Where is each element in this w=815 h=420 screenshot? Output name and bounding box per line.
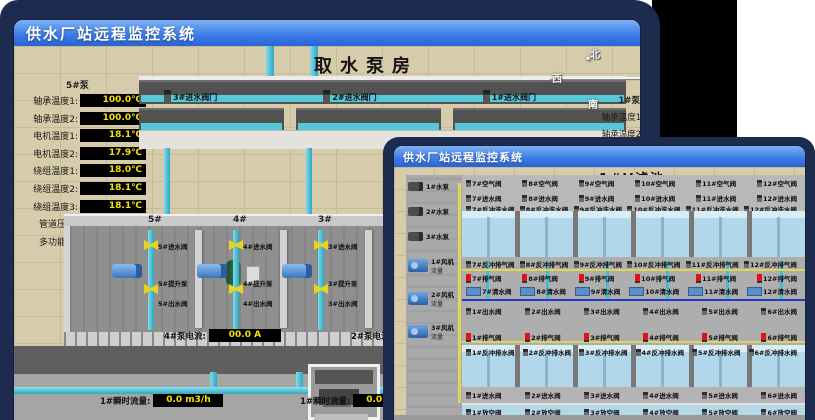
reading-value: 18.1℃: [80, 129, 146, 142]
vent-valve-label: 9#排气阀: [585, 273, 614, 283]
reading-row: 绕组温度3: 18.1℃: [18, 200, 148, 213]
outlet-valve-label: 1#出水阀: [472, 306, 501, 316]
air-valve[interactable]: 7#空气阀: [466, 178, 501, 188]
valve-icon: [483, 90, 490, 103]
clean-water-icon: [575, 287, 590, 296]
outlet-valve[interactable]: 1#出水阀: [466, 306, 501, 316]
pump-bay: 3# 3#进水阀 3#提升泵 3#出水阀: [282, 226, 367, 332]
outlet-valve[interactable]: 4#出水阀: [643, 306, 678, 316]
clean-water-label: 12#清水阀: [763, 286, 797, 296]
current-reading: 4#泵电流: 00.0 A: [164, 329, 281, 342]
blower-icon: [408, 292, 428, 305]
backwash-vent-valve[interactable]: 9#反冲排气阀: [574, 259, 622, 269]
clean-water-label: 11#清水阀: [704, 286, 738, 296]
backwash-drain-label: 2#反冲排水阀: [529, 347, 571, 357]
pump1-header: 1#泵: [554, 94, 640, 106]
outlet-valve[interactable]: 2#出水阀: [525, 306, 560, 316]
flow-value: 0.0 m3/h: [153, 394, 223, 407]
inlet-valve[interactable]: 10#进水阀: [635, 193, 675, 203]
outlet-valve-label: 2#出水阀: [531, 306, 560, 316]
reading-value: 18.0℃: [80, 164, 146, 177]
vent-valve[interactable]: 6#排气阀: [761, 332, 796, 342]
vent-valve[interactable]: 11#排气阀: [696, 273, 736, 283]
filter-cell[interactable]: [694, 211, 747, 257]
clean-water-icon: [520, 287, 535, 296]
inlet-valve-row: 7#进水阀8#进水阀9#进水阀10#进水阀11#进水阀12#进水阀: [466, 193, 797, 203]
vent-valve-label: 5#排气阀: [708, 332, 737, 342]
air-valve-label: 11#空气阀: [702, 178, 736, 188]
filter-pool-scene: 1#V滤池 1#水泵 2#水泵 3#水泵: [394, 167, 805, 420]
filter-cell[interactable]: [578, 211, 631, 257]
scene-title: 取水泵房: [314, 52, 418, 78]
pump-label: 3#提升泵: [328, 278, 357, 288]
lift-pump[interactable]: [112, 264, 142, 278]
filter-cell[interactable]: [636, 211, 689, 257]
vent-valve[interactable]: 1#排气阀: [466, 332, 501, 342]
clean-water-icon: [466, 287, 481, 296]
backwash-vent-label: 9#反冲排气阀: [580, 259, 622, 269]
reading-label: 绕组温度3:: [18, 200, 78, 213]
valve-icon: [525, 308, 530, 315]
background-black-region: [652, 0, 737, 139]
bay-number: 3#: [318, 215, 332, 225]
down-pipe: [164, 148, 170, 214]
inlet-valve-row-lower: 1#进水阀2#进水阀3#进水阀4#进水阀5#进水阀6#进水阀: [466, 390, 797, 400]
reading-row: 绕组温度1: 18.0℃: [18, 164, 148, 177]
air-valve-label: 9#空气阀: [585, 178, 614, 188]
valve-icon: [692, 349, 697, 356]
flow-label: 1#瞬时流量:: [300, 395, 350, 407]
pump-bay: 4# 4#进水阀 4#提升泵 4#出水阀: [197, 226, 282, 332]
intake-valve-label: 3#进水阀门: [173, 92, 217, 103]
inlet-valve-label: 9#进水阀: [585, 193, 614, 203]
clean-water-label: 10#清水阀: [645, 286, 679, 296]
valve-icon: [749, 349, 754, 356]
outlet-valve[interactable]: 5#出水阀: [702, 306, 737, 316]
valve-icon: [643, 308, 648, 315]
pump-label: 1#水泵: [426, 181, 449, 191]
pump-label: 4#提升泵: [243, 278, 272, 288]
valve-icon: [627, 261, 632, 268]
valve-icon: [643, 392, 648, 399]
blower-label: 1#风机: [431, 256, 454, 266]
valve-icon: [164, 90, 171, 103]
lift-pump[interactable]: [197, 264, 227, 278]
channel-water: [141, 123, 282, 130]
blower-label: 3#风机: [431, 322, 454, 332]
valve-icon: [525, 392, 530, 399]
clean-water-valve[interactable]: 11#清水阀: [688, 286, 738, 296]
valve-icon: [761, 308, 766, 315]
scene-bottom-edge: [394, 415, 805, 420]
vent-valve[interactable]: 9#排气阀: [579, 273, 614, 283]
inlet-valve-label: 5#进水阀: [158, 241, 187, 251]
clean-water-pipe: [462, 299, 805, 301]
valve-icon: [761, 392, 766, 399]
vent-valve-label: 1#排气阀: [472, 332, 501, 342]
backwash-drain-valve[interactable]: 5#反冲排水阀: [692, 347, 740, 357]
vent-valve-label: 8#排气阀: [528, 273, 557, 283]
vent-valve[interactable]: 8#排气阀: [522, 273, 557, 283]
pipe-stub: [210, 372, 217, 388]
backwash-drain-valve[interactable]: 6#反冲排水阀: [749, 347, 797, 357]
outlet-valve[interactable]: 3#出水阀: [584, 306, 619, 316]
valve-icon: [635, 195, 640, 202]
reading-value: 100.0℃: [80, 112, 146, 125]
pump-label: 5#提升泵: [158, 278, 187, 288]
reading-label: 绕组温度1:: [18, 164, 78, 177]
upper-filter-cells: [462, 211, 805, 257]
inlet-valve[interactable]: 12#进水阀: [757, 193, 797, 203]
vent-valve-label: 7#排气阀: [472, 273, 501, 283]
backwash-vent-valve[interactable]: 8#反冲排气阀: [520, 259, 568, 269]
desktop: 供水厂站远程监控系统 取水泵房 5#泵 轴承温度1: 100.0℃ 轴承温度2:…: [0, 0, 815, 420]
vent-valve-icon: [757, 274, 762, 283]
down-pipe: [306, 148, 312, 214]
pump5-header: 5#泵: [66, 78, 148, 91]
valve-icon: [686, 261, 691, 268]
outlet-valve-row: 1#出水阀2#出水阀3#出水阀4#出水阀5#出水阀6#出水阀: [466, 306, 797, 316]
air-valve[interactable]: 12#空气阀: [757, 178, 797, 188]
intake-channel: [139, 108, 284, 132]
valve-icon: [466, 195, 471, 202]
valve-icon: [702, 392, 707, 399]
valve-icon: [466, 261, 471, 268]
window-filter-pool[interactable]: 供水厂站远程监控系统 1#V滤池 1#水泵 2#水泵 3#: [394, 146, 805, 420]
vent-valve-row-lower: 1#排气阀2#排气阀3#排气阀4#排气阀5#排气阀6#排气阀: [466, 332, 797, 342]
blower-icon: [408, 325, 428, 338]
valve-icon: [584, 392, 589, 399]
valve-icon: [523, 349, 528, 356]
valve-icon: [466, 308, 471, 315]
reading-value: 17.9℃: [80, 147, 146, 160]
air-valve-label: 10#空气阀: [641, 178, 675, 188]
back-window-title: 供水厂站远程监控系统: [26, 23, 196, 44]
clean-water-label: 8#清水阀: [536, 286, 565, 296]
air-valve-row: 7#空气阀8#空气阀9#空气阀10#空气阀11#空气阀12#空气阀: [466, 178, 797, 188]
reading-row: 轴承温度1:: [554, 111, 640, 123]
inlet-valve-label: 5#进水阀: [708, 390, 737, 400]
inlet-valve-label: 3#进水阀: [590, 390, 619, 400]
cabinet-panel: [315, 370, 373, 384]
compass-west: 西: [552, 70, 562, 85]
clean-water-valve[interactable]: 12#清水阀: [747, 286, 797, 296]
reading-label: 电机温度2:: [18, 147, 78, 160]
blower-flow-label: 流量: [431, 332, 454, 341]
backwash-drain-label: 5#反冲排水阀: [698, 347, 740, 357]
valve-icon: [522, 195, 527, 202]
backwash-drain-label: 6#反冲排水阀: [755, 347, 797, 357]
air-valve-label: 7#空气阀: [472, 178, 501, 188]
valve-icon: [757, 180, 762, 187]
inlet-valve[interactable]: 8#进水阀: [522, 193, 557, 203]
backwash-vent-valve[interactable]: 11#反冲排气阀: [686, 259, 739, 269]
filter-cell[interactable]: [520, 211, 573, 257]
vent-valve[interactable]: 7#排气阀: [466, 273, 501, 283]
lift-pump[interactable]: [282, 264, 312, 278]
inlet-valve[interactable]: 5#进水阀: [702, 390, 737, 400]
valve-icon: [323, 90, 330, 103]
reading-value: 100.0℃: [80, 94, 146, 107]
vent-valve[interactable]: 5#排气阀: [702, 332, 737, 342]
air-valve-label: 8#空气阀: [528, 178, 557, 188]
vent-valve-label: 12#排气阀: [763, 273, 797, 283]
vent-valve[interactable]: 3#排气阀: [584, 332, 619, 342]
inlet-valve[interactable]: 3#进水阀: [584, 390, 619, 400]
inlet-valve[interactable]: 9#进水阀: [579, 193, 614, 203]
riser-pipe: [266, 46, 274, 78]
reading-label: 轴承温度1:: [602, 111, 640, 123]
outlet-valve-label: 4#出水阀: [649, 306, 678, 316]
inlet-valve-label: 6#进水阀: [767, 390, 796, 400]
reading-row: 轴承温度2: 100.0℃: [18, 112, 148, 125]
vent-valve-icon: [635, 274, 640, 283]
blower-text: 1#风机 流量: [431, 256, 454, 275]
clean-water-label: 7#清水阀: [482, 286, 511, 296]
inlet-valve[interactable]: 11#进水阀: [696, 193, 736, 203]
backwash-vent-valve[interactable]: 12#反冲排气阀: [744, 259, 797, 269]
intake-valve[interactable]: 3#进水阀门: [164, 90, 217, 103]
valve-icon: [466, 180, 471, 187]
valve-icon: [702, 308, 707, 315]
valve-icon: [579, 180, 584, 187]
valve-icon: [635, 180, 640, 187]
backwash-vent-label: 11#反冲排气阀: [692, 259, 739, 269]
air-valve[interactable]: 9#空气阀: [579, 178, 614, 188]
vent-valve-icon: [579, 274, 584, 283]
blower-icon: [408, 259, 428, 272]
air-valve[interactable]: 11#空气阀: [696, 178, 736, 188]
backwash-drain-valve[interactable]: 3#反冲排水阀: [579, 347, 627, 357]
clean-water-icon: [688, 287, 703, 296]
valve-icon: [574, 261, 579, 268]
vent-valve-row-upper: 7#排气阀8#排气阀9#排气阀10#排气阀11#排气阀12#排气阀: [466, 273, 797, 283]
backwash-vent-row: 7#反冲排气阀8#反冲排气阀9#反冲排气阀10#反冲排气阀11#反冲排气阀12#…: [466, 259, 797, 269]
clean-water-valve[interactable]: 10#清水阀: [629, 286, 679, 296]
backwash-vent-valve[interactable]: 7#反冲排气阀: [466, 259, 514, 269]
valve-icon: [522, 180, 527, 187]
vent-valve-icon: [522, 274, 527, 283]
pump1-readings-panel: 1#泵 轴承温度1: 轴承温度2:: [554, 94, 640, 140]
valve-icon: [744, 261, 749, 268]
pump-label: 2#水泵: [426, 206, 449, 216]
backwash-drain-valve[interactable]: 1#反冲排水阀: [466, 347, 514, 357]
inlet-valve-label: 4#进水阀: [649, 390, 678, 400]
clean-water-label: 9#清水阀: [591, 286, 620, 296]
bay-number: 4#: [233, 215, 247, 225]
valve-icon: [520, 261, 525, 268]
front-titlebar: 供水厂站远程监控系统: [394, 146, 805, 167]
flow-reading: 1#瞬时流量: 0.0 m3/h: [100, 394, 223, 407]
backwash-vent-label: 10#反冲排气阀: [633, 259, 680, 269]
air-manifold-pipe: [462, 269, 805, 271]
front-window-title: 供水厂站远程监控系统: [403, 149, 523, 165]
inlet-valve[interactable]: 6#进水阀: [761, 390, 796, 400]
pump-icon: [408, 182, 423, 191]
inlet-valve[interactable]: 2#进水阀: [525, 390, 560, 400]
valve-icon: [757, 195, 762, 202]
intake-valve-label: 2#进水阀门: [332, 92, 376, 103]
vent-valve-icon: [761, 333, 766, 342]
inlet-valve-label: 11#进水阀: [702, 193, 736, 203]
valve-icon: [579, 195, 584, 202]
vent-valve-label: 10#排气阀: [641, 273, 675, 283]
backwash-vent-valve[interactable]: 10#反冲排气阀: [627, 259, 680, 269]
inlet-valve-label: 10#进水阀: [641, 193, 675, 203]
vent-valve-icon: [702, 333, 707, 342]
blower-label: 2#风机: [431, 289, 454, 299]
outlet-valve-label: 5#出水阀: [158, 298, 187, 308]
cabinet-pedestal: [314, 414, 368, 420]
backwash-drain-row: 1#反冲排水阀2#反冲排水阀3#反冲排水阀4#反冲排水阀5#反冲排水阀6#反冲排…: [466, 347, 797, 357]
inlet-valve-label: 1#进水阀: [472, 390, 501, 400]
reading-label: 绕组温度2:: [18, 182, 78, 195]
vent-valve[interactable]: 10#排气阀: [635, 273, 675, 283]
vent-valve-label: 2#排气阀: [531, 332, 560, 342]
blower-text: 2#风机 流量: [431, 289, 454, 308]
outlet-valve-label: 4#出水阀: [243, 298, 272, 308]
reading-row: 电机温度1: 18.1℃: [18, 129, 148, 142]
air-valve[interactable]: 10#空气阀: [635, 178, 675, 188]
filter-cell[interactable]: [462, 211, 515, 257]
inlet-valve[interactable]: 7#进水阀: [466, 193, 501, 203]
reading-row: 电机温度2: 17.9℃: [18, 147, 148, 160]
vent-valve-icon: [466, 333, 471, 342]
inlet-valve-label: 12#进水阀: [763, 193, 797, 203]
inlet-valve-label: 4#进水阀: [243, 241, 272, 251]
valve-icon: [636, 349, 641, 356]
intake-valve-row: 3#进水阀门 2#进水阀门 1#进水阀门: [164, 90, 536, 103]
valve-icon: [466, 349, 471, 356]
pump-bay: 5# 5#进水阀 5#提升泵 5#出水阀: [112, 226, 197, 332]
reading-row: 轴承温度1: 100.0℃: [18, 94, 148, 107]
vent-valve-label: 6#排气阀: [767, 332, 796, 342]
intake-channel: [296, 108, 441, 132]
backwash-drain-valve[interactable]: 4#反冲排水阀: [636, 347, 684, 357]
vent-valve-icon: [696, 274, 701, 283]
current-label: 4#泵电流:: [164, 330, 206, 342]
current-value: 00.0 A: [209, 329, 281, 342]
pump-icon: [408, 232, 423, 241]
inlet-valve-label: 7#进水阀: [472, 193, 501, 203]
inlet-valve[interactable]: 1#进水阀: [466, 390, 501, 400]
inlet-valve-label: 2#进水阀: [531, 390, 560, 400]
pump-label: 3#水泵: [426, 231, 449, 241]
backwash-drain-valve[interactable]: 2#反冲排水阀: [523, 347, 571, 357]
inlet-valve[interactable]: 4#进水阀: [643, 390, 678, 400]
vent-valve-icon: [525, 333, 530, 342]
backwash-vent-label: 8#反冲排气阀: [526, 259, 568, 269]
reading-row: 绕组温度2: 18.1℃: [18, 182, 148, 195]
vent-valve-label: 3#排气阀: [590, 332, 619, 342]
valve-icon: [696, 195, 701, 202]
channel-water: [298, 123, 439, 130]
vent-valve-label: 11#排气阀: [702, 273, 736, 283]
inlet-valve-label: 8#进水阀: [528, 193, 557, 203]
clean-water-valve-row: 7#清水阀8#清水阀9#清水阀10#清水阀11#清水阀12#清水阀: [466, 286, 797, 296]
outlet-valve-label: 3#出水阀: [590, 306, 619, 316]
clean-water-valve[interactable]: 7#清水阀: [466, 286, 511, 296]
blower-flow-label: 流量: [431, 266, 454, 275]
reading-label: 轴承温度1:: [18, 94, 78, 107]
blower-text: 3#风机 流量: [431, 322, 454, 341]
back-titlebar: 供水厂站远程监控系统: [14, 20, 640, 46]
outlet-valve-label: 3#出水阀: [328, 298, 357, 308]
vent-valve[interactable]: 2#排气阀: [525, 332, 560, 342]
blower-flow-label: 流量: [431, 299, 454, 308]
reading-label: 轴承温度2:: [18, 112, 78, 125]
pump-icon: [408, 207, 423, 216]
vent-valve-icon: [466, 274, 471, 283]
pipe-stub: [296, 372, 303, 388]
pump1-labels: 轴承温度1: 轴承温度2:: [554, 111, 640, 140]
air-valve[interactable]: 8#空气阀: [522, 178, 557, 188]
intake-valve[interactable]: 1#进水阀门: [483, 90, 536, 103]
backwash-vent-label: 7#反冲排气阀: [472, 259, 514, 269]
backwash-drain-label: 3#反冲排水阀: [585, 347, 627, 357]
valve-icon: [584, 308, 589, 315]
clean-water-valve[interactable]: 8#清水阀: [520, 286, 565, 296]
valve-icon: [696, 180, 701, 187]
outlet-valve[interactable]: 6#出水阀: [761, 306, 796, 316]
equipment-cabinet[interactable]: [308, 364, 380, 420]
vent-valve[interactable]: 4#排气阀: [643, 332, 678, 342]
air-valve-label: 12#空气阀: [763, 178, 797, 188]
vent-valve[interactable]: 12#排气阀: [757, 273, 797, 283]
intake-valve[interactable]: 2#进水阀门: [323, 90, 376, 103]
compass-axis: [550, 77, 640, 79]
outlet-valve-label: 6#出水阀: [767, 306, 796, 316]
valve-icon: [466, 392, 471, 399]
backwash-vent-label: 12#反冲排气阀: [750, 259, 797, 269]
clean-water-icon: [747, 287, 762, 296]
backwash-drain-label: 1#反冲排水阀: [472, 347, 514, 357]
valve-icon: [579, 349, 584, 356]
inlet-valve-label: 3#进水阀: [328, 241, 357, 251]
vent-valve-icon: [643, 333, 648, 342]
backwash-drain-label: 4#反冲排水阀: [642, 347, 684, 357]
vent-valve-label: 4#排气阀: [649, 332, 678, 342]
bay-number: 5#: [148, 215, 162, 225]
clean-water-valve[interactable]: 9#清水阀: [575, 286, 620, 296]
outlet-valve-label: 5#出水阀: [708, 306, 737, 316]
reading-label: 电机温度1:: [18, 129, 78, 142]
vent-valve-icon: [584, 333, 589, 342]
intake-valve-label: 1#进水阀门: [492, 92, 536, 103]
filter-cell[interactable]: [752, 211, 805, 257]
reading-value: 18.1℃: [80, 200, 146, 213]
clean-water-icon: [629, 287, 644, 296]
compass-north: 北: [590, 46, 600, 61]
flow-label: 1#瞬时流量:: [100, 395, 150, 407]
reading-value: 18.1℃: [80, 182, 146, 195]
